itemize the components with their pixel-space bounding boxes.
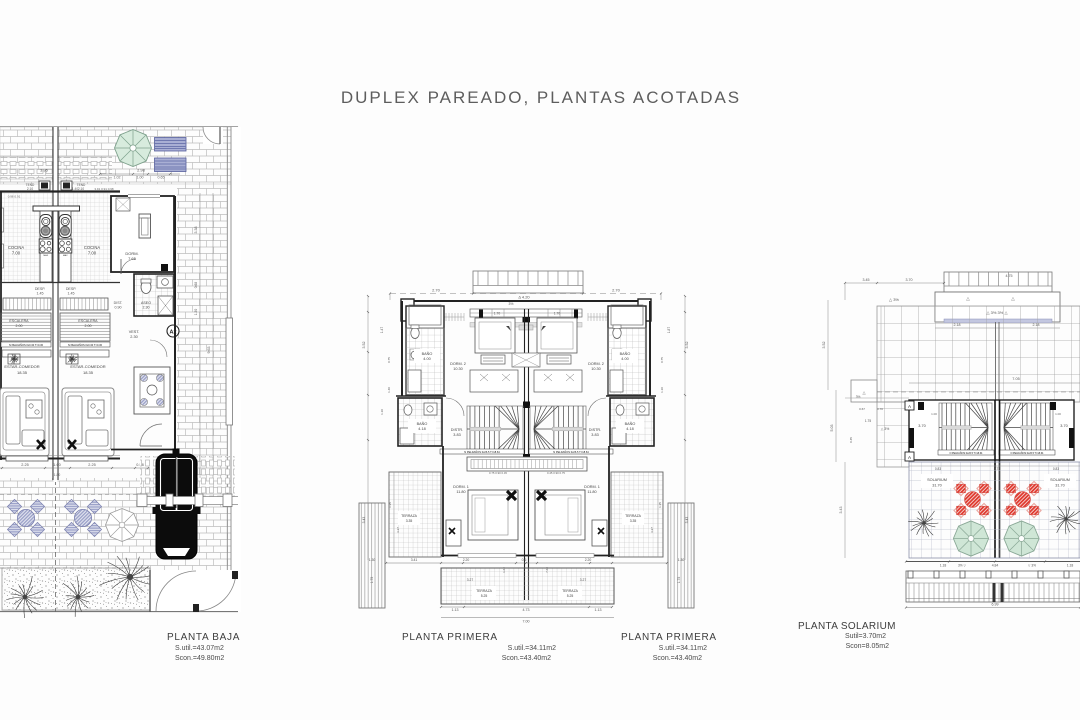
svg-text:31.70: 31.70 — [1055, 484, 1065, 488]
svg-text:5.25: 5.25 — [481, 594, 488, 598]
svg-text:DIST.: DIST. — [114, 301, 123, 305]
svg-text:DESP.: DESP. — [35, 287, 45, 291]
svg-text:△ 3%: △ 3% — [881, 427, 889, 431]
svg-text:0.70: 0.70 — [877, 407, 883, 411]
svg-text:Scon=8.05m2: Scon=8.05m2 — [846, 643, 889, 650]
svg-text:1.75: 1.75 — [370, 577, 374, 584]
svg-text:DESP.: DESP. — [66, 287, 76, 291]
svg-text:3% ▽: 3% ▽ — [958, 564, 966, 568]
svg-text:DORM. 2: DORM. 2 — [588, 362, 604, 366]
svg-text:6.99: 6.99 — [992, 603, 999, 607]
svg-text:BAÑO: BAÑO — [417, 421, 428, 426]
svg-text:1.40: 1.40 — [387, 387, 391, 393]
svg-text:0.90: 0.90 — [115, 306, 122, 310]
svg-text:3.95: 3.95 — [40, 168, 49, 173]
svg-text:3.27: 3.27 — [650, 527, 654, 533]
svg-text:0.6: 0.6 — [522, 558, 527, 562]
svg-text:ASEO: ASEO — [141, 301, 151, 305]
svg-text:18.35: 18.35 — [83, 370, 94, 375]
svg-text:▽ 3%: ▽ 3% — [1028, 564, 1036, 568]
svg-text:S.util.=43.07m2: S.util.=43.07m2 — [175, 645, 224, 652]
svg-text:ESCALERA: ESCALERA — [78, 319, 98, 323]
svg-text:3.35: 3.35 — [406, 519, 413, 523]
svg-text:3.43: 3.43 — [685, 517, 689, 524]
svg-text:3.27: 3.27 — [580, 578, 587, 582]
svg-text:3.43: 3.43 — [362, 517, 366, 524]
svg-text:3.70: 3.70 — [906, 278, 913, 282]
svg-text:PLANTA SOLARIUM: PLANTA SOLARIUM — [798, 621, 896, 632]
svg-text:0.75: 0.75 — [387, 357, 391, 363]
svg-text:1.60: 1.60 — [53, 463, 60, 467]
svg-text:VEST.: VEST. — [129, 330, 140, 334]
svg-text:3.52: 3.52 — [685, 342, 689, 349]
svg-text:1.80: 1.80 — [54, 473, 61, 477]
svg-text:1.30: 1.30 — [194, 309, 198, 316]
svg-text:1.70: 1.70 — [494, 312, 501, 316]
svg-text:PLANTA BAJA: PLANTA BAJA — [167, 632, 240, 643]
svg-text:2.30: 2.30 — [130, 335, 137, 339]
svg-text:2.70: 2.70 — [432, 288, 441, 293]
svg-text:COCINA: COCINA — [84, 245, 100, 250]
svg-text:0.83: 0.83 — [935, 467, 941, 471]
svg-text:1.70: 1.70 — [554, 312, 561, 316]
svg-text:3.52: 3.52 — [822, 342, 826, 349]
svg-text:18.35: 18.35 — [17, 370, 28, 375]
svg-text:2.10: 2.10 — [78, 187, 84, 191]
svg-text:COCINA: COCINA — [8, 245, 24, 250]
svg-text:7.00: 7.00 — [523, 620, 530, 624]
svg-text:1.00: 1.00 — [1055, 412, 1061, 416]
svg-text:DORM. 1: DORM. 1 — [453, 485, 469, 489]
svg-text:11.80: 11.80 — [587, 490, 596, 494]
svg-text:TERRAZA: TERRAZA — [625, 514, 642, 518]
svg-text:3%: 3% — [856, 395, 861, 399]
svg-text:4.18: 4.18 — [626, 427, 633, 431]
svg-text:PLANTA PRIMERA: PLANTA PRIMERA — [621, 632, 717, 643]
svg-text:ESTAR-COMEDOR: ESTAR-COMEDOR — [70, 364, 105, 369]
svg-text:4.00: 4.00 — [423, 357, 430, 361]
svg-text:1.35: 1.35 — [658, 502, 662, 508]
svg-text:ESCALERA: ESCALERA — [9, 319, 29, 323]
svg-text:S.util.=34.11m2: S.util.=34.11m2 — [659, 645, 707, 652]
svg-text:4.75: 4.75 — [1006, 274, 1013, 278]
svg-text:7.00: 7.00 — [12, 251, 21, 256]
svg-text:2.70: 2.70 — [612, 288, 621, 293]
svg-text:TERRAZA: TERRAZA — [562, 589, 579, 593]
svg-text:Δ 4.20: Δ 4.20 — [518, 295, 530, 300]
svg-text:3.70: 3.70 — [1060, 424, 1067, 428]
svg-text:N PELDAÑOS 0x26.5 T=18.64: N PELDAÑOS 0x26.5 T=18.64 — [950, 452, 983, 455]
svg-text:1.87: 1.87 — [667, 327, 671, 334]
svg-text:1.45: 1.45 — [68, 292, 75, 296]
svg-text:Scon.=43.40m2: Scon.=43.40m2 — [502, 655, 551, 662]
svg-text:DISTR.: DISTR. — [451, 428, 463, 432]
svg-text:7.00: 7.00 — [88, 251, 97, 256]
svg-text:1.13: 1.13 — [452, 608, 459, 612]
svg-text:3.27: 3.27 — [396, 527, 400, 533]
svg-text:PLANTA PRIMERA: PLANTA PRIMERA — [402, 632, 498, 643]
svg-text:1.10: 1.10 — [660, 387, 664, 393]
svg-text:10.30: 10.30 — [591, 367, 601, 371]
svg-text:1.63: 1.63 — [502, 567, 506, 573]
svg-text:4.18: 4.18 — [418, 427, 425, 431]
svg-text:2.00: 2.00 — [16, 324, 23, 328]
svg-text:△: △ — [966, 296, 970, 301]
svg-text:5.03: 5.03 — [830, 425, 834, 432]
svg-text:7.60: 7.60 — [545, 567, 549, 573]
svg-text:0.65: 0.65 — [158, 176, 165, 180]
svg-text:S.util.=34.11m2: S.util.=34.11m2 — [508, 645, 556, 652]
svg-text:4.84: 4.84 — [992, 564, 999, 568]
svg-text:TERRAZA: TERRAZA — [476, 589, 493, 593]
svg-text:2.25: 2.25 — [88, 463, 95, 467]
svg-text:3.70: 3.70 — [918, 424, 925, 428]
svg-text:1.18: 1.18 — [1067, 564, 1074, 568]
svg-text:2.98: 2.98 — [137, 168, 146, 173]
svg-text:SOLARIUM: SOLARIUM — [1050, 478, 1070, 482]
svg-text:0.83: 0.83 — [1053, 467, 1059, 471]
svg-text:2.10: 2.10 — [27, 187, 33, 191]
svg-text:ESTAR-COMEDOR: ESTAR-COMEDOR — [4, 364, 39, 369]
svg-text:4.73: 4.73 — [523, 608, 530, 612]
svg-text:Sutil=3.70m2: Sutil=3.70m2 — [845, 633, 886, 640]
svg-text:BAÑO: BAÑO — [620, 351, 631, 356]
svg-text:2.20: 2.20 — [585, 558, 592, 562]
svg-text:1.45: 1.45 — [37, 292, 44, 296]
svg-text:1.47: 1.47 — [380, 327, 384, 334]
svg-text:△: △ — [1011, 296, 1015, 301]
svg-text:0.75: 0.75 — [660, 357, 664, 363]
svg-text:DUPLEX PAREADO, PLANTAS ACOTAD: DUPLEX PAREADO, PLANTAS ACOTADAS — [341, 88, 741, 107]
svg-text:1.30: 1.30 — [678, 558, 685, 562]
svg-text:1.75: 1.75 — [865, 419, 871, 423]
svg-text:1.02: 1.02 — [114, 176, 121, 180]
svg-text:0.68: 0.68 — [194, 282, 198, 289]
svg-text:SOLARIUM: SOLARIUM — [927, 478, 947, 482]
svg-text:BAÑO: BAÑO — [422, 351, 433, 356]
svg-text:1.18: 1.18 — [940, 564, 947, 568]
svg-text:DORM. 2: DORM. 2 — [450, 362, 466, 366]
svg-text:BAÑO: BAÑO — [625, 421, 636, 426]
svg-text:Scon.=49.80m2: Scon.=49.80m2 — [175, 655, 224, 662]
svg-text:4.73: 4.73 — [994, 467, 1000, 471]
svg-text:11.80: 11.80 — [456, 490, 465, 494]
svg-text:A: A — [908, 455, 911, 460]
svg-text:TERRAZA: TERRAZA — [401, 514, 418, 518]
svg-text:N PELDAÑOS 0x26.5 T=18.64: N PELDAÑOS 0x26.5 T=18.64 — [1011, 452, 1044, 455]
svg-text:DISTR.: DISTR. — [589, 428, 601, 432]
svg-text:2.25: 2.25 — [21, 463, 28, 467]
svg-text:0.45: 0.45 — [849, 437, 853, 443]
svg-text:3%: 3% — [509, 302, 514, 306]
svg-text:9.63: 9.63 — [207, 347, 211, 354]
svg-text:2.20: 2.20 — [463, 558, 470, 562]
svg-text:3.41: 3.41 — [411, 558, 418, 562]
svg-text:A: A — [908, 404, 911, 409]
svg-text:2.00: 2.00 — [85, 324, 92, 328]
svg-text:1.30: 1.30 — [369, 558, 376, 562]
svg-text:0.45 0.90 0.75: 0.45 0.90 0.75 — [547, 471, 565, 475]
svg-text:3.83: 3.83 — [591, 433, 598, 437]
svg-text:10.30: 10.30 — [453, 367, 463, 371]
svg-text:1.10: 1.10 — [380, 409, 384, 415]
svg-text:3.83: 3.83 — [453, 433, 460, 437]
svg-text:4.00: 4.00 — [621, 357, 628, 361]
svg-text:3.27: 3.27 — [467, 578, 474, 582]
svg-text:5.25: 5.25 — [567, 594, 574, 598]
svg-text:2.30: 2.30 — [143, 306, 150, 310]
svg-text:3.43: 3.43 — [839, 507, 843, 514]
svg-text:0.67: 0.67 — [859, 407, 865, 411]
svg-text:Scon.=43.40m2: Scon.=43.40m2 — [653, 655, 702, 662]
svg-text:1.75: 1.75 — [677, 577, 681, 584]
svg-text:1.35: 1.35 — [388, 502, 392, 508]
svg-text:△ 3%: △ 3% — [889, 297, 899, 302]
svg-text:3.35: 3.35 — [630, 519, 637, 523]
svg-text:MAX: MAX — [63, 254, 68, 257]
svg-text:0.75 0.90 0.45: 0.75 0.90 0.45 — [489, 471, 507, 475]
svg-text:DORM. 1: DORM. 1 — [584, 485, 600, 489]
svg-text:1.13: 1.13 — [595, 608, 602, 612]
svg-text:1.00: 1.00 — [931, 412, 937, 416]
svg-text:31.70: 31.70 — [932, 484, 942, 488]
svg-text:3.52: 3.52 — [362, 342, 366, 349]
svg-text:3.38: 3.38 — [194, 227, 198, 234]
svg-text:7.05: 7.05 — [1012, 377, 1019, 381]
svg-text:MAX: MAX — [43, 254, 48, 257]
svg-text:3.45: 3.45 — [863, 278, 870, 282]
svg-text:1.00: 1.00 — [137, 176, 144, 180]
